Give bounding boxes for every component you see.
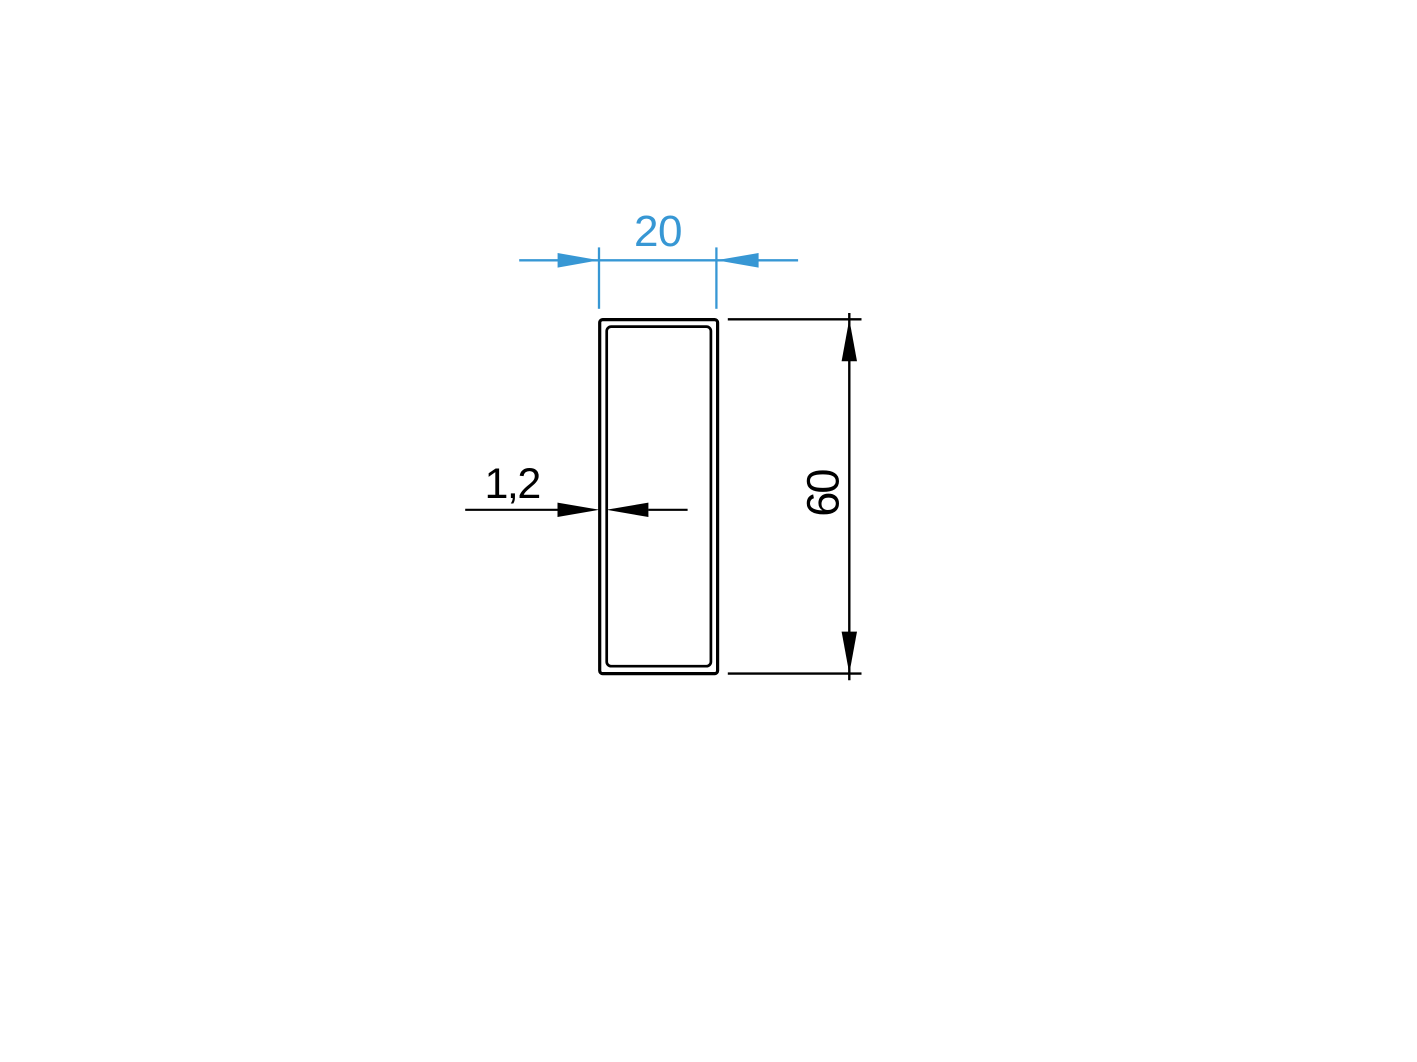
- svg-text:60: 60: [798, 470, 849, 517]
- svg-text:1,2: 1,2: [485, 460, 540, 508]
- svg-text:20: 20: [634, 207, 682, 256]
